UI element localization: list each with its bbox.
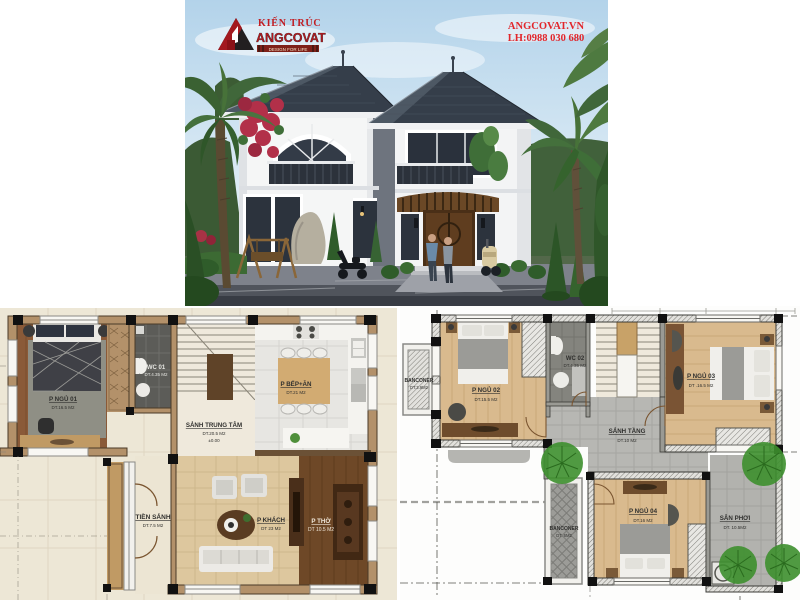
svg-text:P KHÁCH: P KHÁCH [257, 517, 286, 524]
svg-text:SÂN PHƠI: SÂN PHƠI [720, 515, 751, 522]
svg-text:DT.15.5 M2: DT.15.5 M2 [474, 397, 498, 402]
svg-text:DT 10.5 M2: DT 10.5 M2 [308, 527, 334, 533]
svg-text:DESIGN FOR LIFE: DESIGN FOR LIFE [269, 47, 308, 52]
svg-text:DT 23 M2: DT 23 M2 [261, 526, 281, 531]
svg-text:WC 01: WC 01 [147, 365, 166, 371]
svg-text:DT .16.5 M2: DT .16.5 M2 [689, 383, 714, 388]
svg-text:DT.4.35 M2: DT.4.35 M2 [144, 372, 168, 377]
svg-text:BANCONER: BANCONER [405, 378, 434, 384]
svg-text:P NGỦ 01: P NGỦ 01 [49, 396, 78, 403]
svg-text:LH:0988 030 680: LH:0988 030 680 [508, 33, 584, 44]
svg-text:DT.16 M2: DT.16 M2 [633, 518, 653, 523]
svg-text:ANGCOVAT.VN: ANGCOVAT.VN [508, 21, 585, 32]
svg-text:P NGỦ 03: P NGỦ 03 [687, 373, 716, 380]
svg-text:WC 02: WC 02 [566, 356, 585, 362]
svg-text:DT.21 M2: DT.21 M2 [286, 390, 306, 395]
svg-text:DT. 6M2: DT. 6M2 [556, 533, 572, 538]
svg-text:DT.20.5 M2: DT.20.5 M2 [202, 431, 226, 436]
svg-text:P BẾP+ĂN: P BẾP+ĂN [280, 381, 312, 388]
svg-text:P NGỦ 02: P NGỦ 02 [472, 387, 501, 394]
svg-text:DT.10 M2: DT.10 M2 [617, 438, 637, 443]
svg-text:DT.16.5 M2: DT.16.5 M2 [51, 405, 75, 410]
svg-text:DT.3.9M2: DT.3.9M2 [410, 385, 429, 390]
svg-text:SẢNH TẦNG: SẢNH TẦNG [609, 428, 646, 435]
svg-text:ANGCOVAT: ANGCOVAT [256, 31, 326, 45]
svg-text:BANCONER: BANCONER [550, 526, 579, 532]
svg-text:DT.7.5 M2: DT.7.5 M2 [143, 523, 164, 528]
svg-text:DT.4.35 M2: DT.4.35 M2 [563, 363, 587, 368]
svg-text:P THỜ: P THỜ [311, 517, 331, 525]
svg-text:DT. 10.5M2: DT. 10.5M2 [723, 525, 747, 530]
svg-text:P NGỦ 04: P NGỦ 04 [629, 508, 658, 515]
svg-text:SẢNH TRUNG TÂM: SẢNH TRUNG TÂM [186, 422, 242, 429]
svg-text:±0.00: ±0.00 [208, 438, 220, 443]
svg-text:KIẾN TRÚC: KIẾN TRÚC [258, 16, 321, 29]
